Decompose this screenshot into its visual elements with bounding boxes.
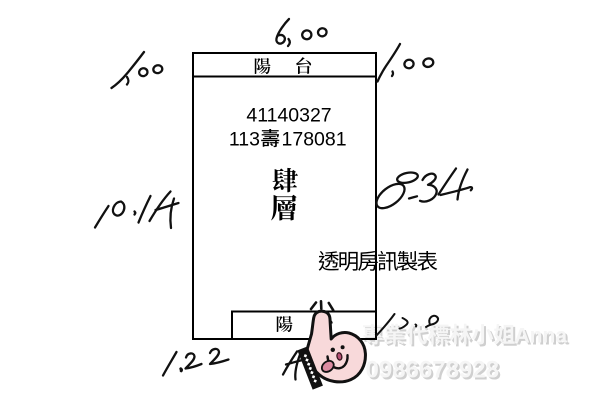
svg-text:113: 113: [229, 129, 260, 151]
svg-text:41140327: 41140327: [246, 105, 331, 127]
svg-text:Anna: Anna: [515, 325, 568, 348]
svg-text:0986678928: 0986678928: [366, 357, 499, 384]
svg-text:178081: 178081: [282, 129, 347, 151]
